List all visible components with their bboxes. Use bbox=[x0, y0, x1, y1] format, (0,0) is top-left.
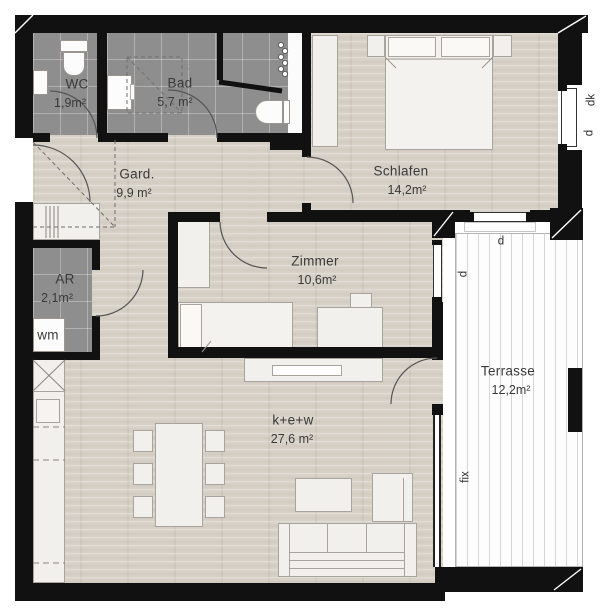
room-label-terrasse: Terrasse bbox=[481, 364, 535, 378]
bath-angled-partition bbox=[219, 82, 282, 91]
room-area-kew: 27,6 m² bbox=[271, 433, 313, 446]
room-area-wc: 1,9m² bbox=[54, 97, 86, 110]
bath-radiator bbox=[278, 42, 287, 76]
room-label-ar: AR bbox=[55, 272, 74, 286]
room-label-wc: WC bbox=[65, 77, 88, 91]
room-label-bad: Bad bbox=[168, 76, 193, 90]
room-label-gard: Gard. bbox=[119, 167, 154, 181]
room-area-bad: 5,7 m² bbox=[157, 96, 192, 109]
room-area-zimmer: 10,6m² bbox=[298, 274, 337, 287]
room-label-zimmer: Zimmer bbox=[291, 254, 339, 268]
washing-machine-label: wm bbox=[37, 328, 59, 342]
window-label-d: d bbox=[584, 130, 596, 136]
room-label-schlafen: Schlafen bbox=[374, 164, 429, 178]
room-area-terrasse: 12,2m² bbox=[492, 384, 531, 397]
window-label-d: d bbox=[498, 236, 504, 248]
room-label-kew: k+e+w bbox=[272, 413, 313, 427]
wall-corner-hatches bbox=[15, 15, 586, 590]
floor-plan: WC 1,9m² 120/120 Bad 5,7 m² Gard. 9,9 m²… bbox=[0, 0, 607, 616]
door-arcs bbox=[33, 90, 437, 404]
room-area-ar: 2,1m² bbox=[41, 292, 73, 305]
window-label-fix: fix bbox=[460, 471, 472, 483]
plan-linework bbox=[0, 0, 607, 616]
shower-size-label: 120/120 bbox=[164, 62, 198, 72]
gard-area-dashes bbox=[33, 140, 115, 227]
cabinet-x-marks bbox=[33, 360, 65, 391]
coat-rack-lines bbox=[46, 206, 58, 238]
room-area-gard: 9,9 m² bbox=[116, 187, 151, 200]
bed-detail-lines bbox=[202, 57, 493, 352]
window-label-dk: dk bbox=[586, 94, 598, 106]
window-label-d: d bbox=[458, 271, 470, 277]
counter-divider-dashes bbox=[33, 427, 65, 563]
room-area-schlafen: 14,2m² bbox=[388, 184, 427, 197]
